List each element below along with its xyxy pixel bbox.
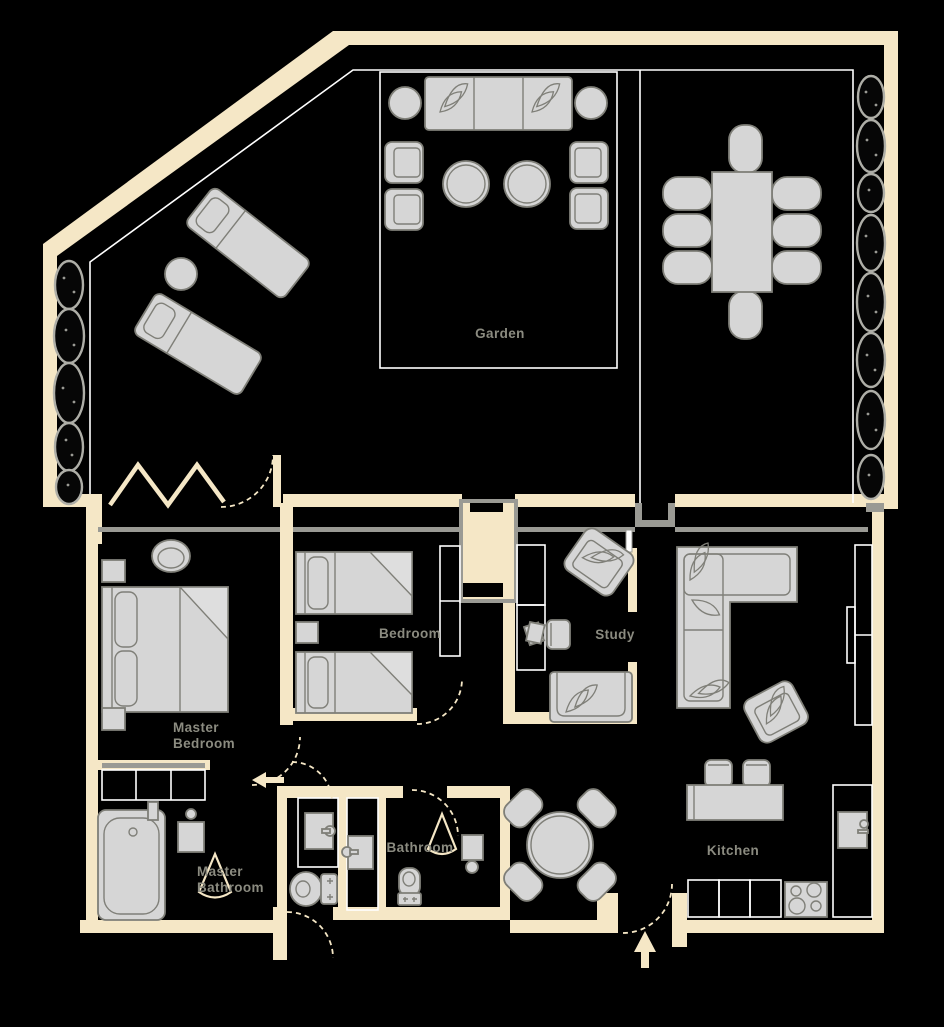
wall-entry-post-right [672, 893, 687, 947]
window-band-3 [517, 527, 635, 532]
dining-chair [729, 125, 762, 173]
hedge-icon [857, 273, 885, 331]
master-bedroom-label-line2: Bedroom [173, 736, 235, 751]
kitchen-sink [838, 812, 868, 848]
hedge-icon [857, 391, 885, 449]
dining-chair [772, 251, 821, 284]
wall-garden-bottom-2 [515, 494, 635, 507]
bar-stool [705, 760, 732, 787]
window-band-4 [675, 527, 868, 532]
bedroom-label: Bedroom [379, 626, 441, 641]
single-bed [296, 652, 412, 713]
faucet-icon [350, 850, 358, 854]
hedge-icon [55, 423, 83, 471]
sliding-door-leaf [626, 530, 632, 552]
garden-armchair [570, 188, 608, 229]
hedge-icon [858, 76, 884, 118]
wall-bottom-bathroom [333, 907, 510, 920]
toilet [398, 868, 421, 905]
coffee-table [443, 161, 489, 207]
wall-bottom-kitchen-left [510, 920, 600, 933]
wall-corridor-stub [273, 907, 287, 960]
garden-armchair [385, 189, 423, 230]
dining-chair [663, 251, 712, 284]
kitchen-label: Kitchen [707, 843, 759, 858]
counter [687, 785, 783, 820]
papers-icon [526, 622, 545, 644]
master-bathroom-label-line2: Bathroom [197, 880, 264, 895]
window-band-1 [98, 527, 280, 532]
toilet [290, 872, 337, 906]
double-bed [102, 587, 228, 712]
hedge-icon [55, 261, 83, 309]
terrace-door-sill [635, 520, 675, 527]
hedge-icon [858, 455, 884, 499]
hedge-icon [56, 470, 82, 504]
wall-right-lower [872, 505, 884, 920]
drain-icon [466, 861, 478, 873]
garden-armchair [385, 142, 423, 183]
shaft-notch-top [470, 503, 503, 512]
faucet-icon [858, 830, 868, 833]
nightstand [296, 622, 318, 643]
planter [389, 87, 421, 119]
study-loveseat [550, 672, 632, 722]
coffee-table [504, 161, 550, 207]
hedge-icon [857, 333, 885, 387]
wall-shaft-leg [503, 601, 515, 712]
dining-chair [663, 177, 712, 210]
wc-sink [305, 813, 335, 849]
wall-garden-bottom-1 [283, 494, 462, 507]
planter [575, 87, 607, 119]
side-table [165, 258, 197, 290]
window-band-2 [293, 527, 460, 532]
wall-bottom-kitchen-right [687, 920, 884, 933]
wall-wc-top [277, 786, 403, 798]
shaft-notch-bottom [463, 583, 503, 597]
single-bed [296, 552, 412, 614]
hedge-right [857, 76, 885, 499]
desk-chair [547, 620, 570, 649]
corner-block [866, 503, 884, 512]
wall-top [333, 31, 898, 45]
faucet-icon [186, 809, 196, 819]
nightstand [102, 708, 125, 730]
dining-table [712, 172, 772, 292]
wall-bottom-masterbath [80, 920, 277, 933]
dining-chair [663, 214, 712, 247]
bathroom-label: Bathroom [387, 840, 454, 855]
hedge-icon [858, 174, 884, 212]
hedge-icon [54, 309, 84, 363]
faucet-icon [860, 820, 868, 828]
wall-bathroom-right [500, 786, 510, 880]
wall-masterbed-bedroom [280, 503, 293, 725]
hedge-icon [857, 120, 885, 172]
cooktop [785, 882, 827, 917]
wall-wc-mid-2 [378, 798, 386, 910]
garden-armchair [570, 142, 608, 183]
dining-chair [772, 177, 821, 210]
study-label: Study [595, 627, 635, 642]
service-shaft [461, 501, 516, 601]
hedge-icon [857, 215, 885, 271]
wall-unit-left [86, 507, 98, 933]
floorplan-canvas: Garden Bedroom Master Bedroom Study Kitc… [0, 0, 944, 1027]
nightstand [102, 560, 125, 582]
bar-stool [743, 760, 770, 787]
master-bathroom-label-line1: Master [197, 864, 243, 879]
faucet-icon [322, 829, 330, 833]
dining-chair [772, 214, 821, 247]
kitchen-round-table [527, 812, 593, 878]
master-bedroom-label-line1: Master [173, 720, 219, 735]
hedge-icon [54, 363, 84, 423]
tub-faucet-icon [148, 802, 158, 820]
garden-door-leaf [273, 455, 281, 507]
wall-right-upper [884, 31, 898, 509]
dining-chair [729, 291, 762, 339]
bathtub [98, 802, 165, 920]
masterbed-bottom-line [102, 763, 205, 768]
floorplan-svg: Garden Bedroom Master Bedroom Study Kitc… [0, 0, 944, 1027]
garden-label: Garden [475, 326, 525, 341]
